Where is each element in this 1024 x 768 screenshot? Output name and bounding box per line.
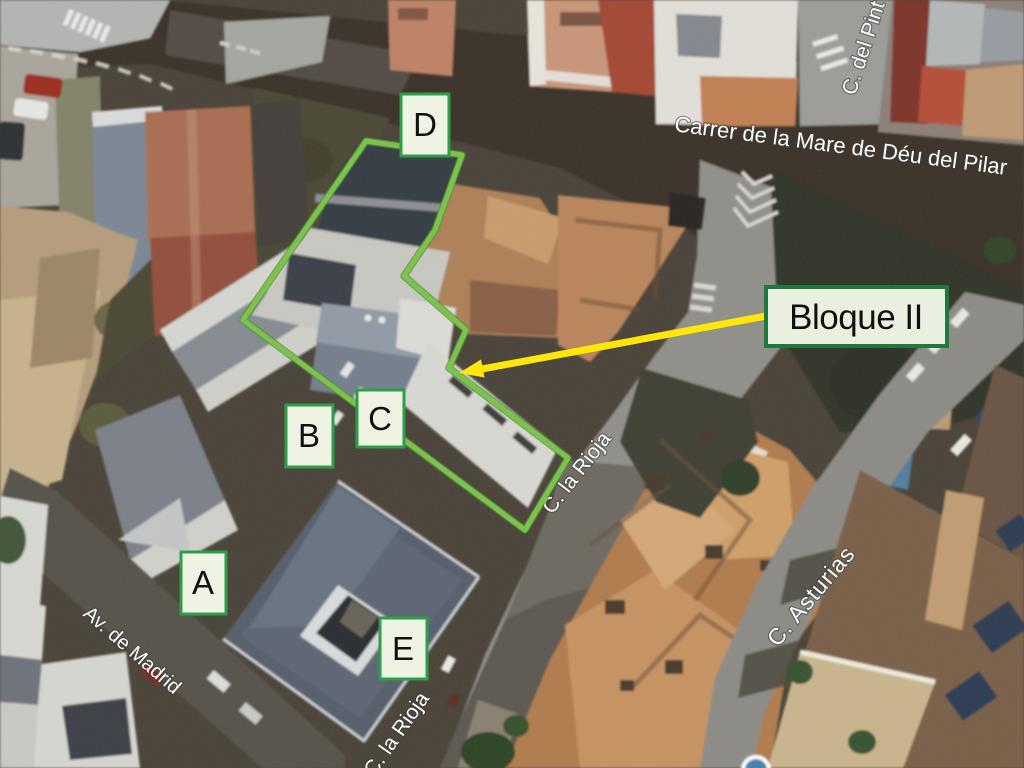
svg-text:A: A xyxy=(192,564,214,601)
svg-text:D: D xyxy=(413,106,437,143)
svg-text:E: E xyxy=(392,630,414,667)
svg-text:Bloque II: Bloque II xyxy=(789,298,923,337)
svg-text:C: C xyxy=(368,400,392,437)
svg-text:B: B xyxy=(298,417,320,454)
